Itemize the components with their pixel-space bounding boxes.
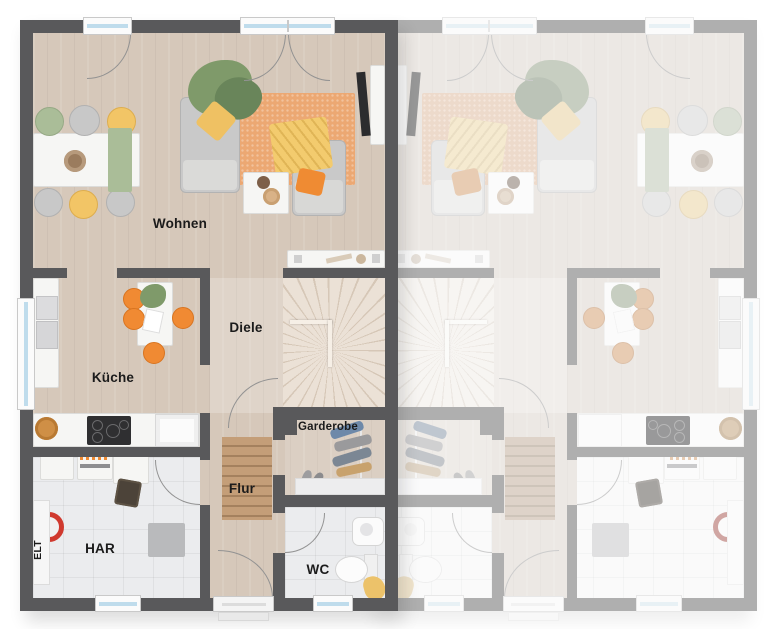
toilet-icon [409,556,442,583]
decor-bowl [64,150,86,172]
tool-basket-icon [114,478,142,508]
dining-chair [34,188,63,217]
dining-chair [679,190,708,219]
fridge-icon [719,321,741,349]
oven-icon [36,296,58,320]
door-step [508,612,559,621]
sink-icon [155,414,199,447]
dining-chair [69,105,100,136]
window [313,595,353,612]
basket-icon [35,417,58,440]
vase-icon [507,176,520,189]
stair-rail-icon [445,320,449,367]
dining-chair [35,107,64,136]
storage-box [148,523,185,557]
staircase [283,278,385,407]
wrench-icon [80,464,110,468]
table-runner [645,128,669,192]
wall [33,447,200,457]
wall [567,268,660,278]
decor-item [397,254,405,263]
sofa-cushion [183,160,237,190]
wall [567,278,577,365]
room-label-elt: ELT [32,532,44,568]
front-door [503,596,564,612]
burner-icon [119,420,129,430]
sofa-cushion [540,160,594,190]
decor-item [356,254,366,264]
door-step [218,612,269,621]
house-unit-left: Wohnen Küche Diele Flur Garderobe HAR WC… [20,20,398,611]
vase-icon [257,176,270,189]
tv-board [370,65,385,145]
basket-icon [719,417,742,440]
hall-runner-rug [222,437,272,520]
dining-chair [677,105,708,136]
wall [492,475,504,513]
table-runner [108,128,132,192]
decor-bowl [691,150,713,172]
hall-runner-rug [505,437,555,520]
window [742,298,760,410]
dining-chair [713,107,742,136]
wall [200,505,210,598]
staircase [392,278,494,407]
washbasin-bowl [360,523,373,536]
blanket [269,116,334,176]
fridge-icon [36,321,58,349]
window [424,595,464,612]
shoe-bench [295,478,385,495]
burner-icon [92,432,103,443]
sink-icon [578,414,622,447]
wall [577,447,744,457]
bar-stool [612,342,634,364]
decor-item [294,255,302,263]
wall [117,268,210,278]
cabinet [40,454,74,480]
wall [492,420,504,440]
tool-basket-icon [635,478,663,508]
window [17,298,35,410]
wall [392,268,494,278]
blanket [444,116,509,176]
decor-item [411,254,421,264]
wall [392,407,504,420]
wall [492,553,504,598]
cabinet [703,454,737,480]
bar-stool [632,308,654,330]
wall [392,495,492,507]
front-door [213,596,274,612]
burner-icon [92,420,103,431]
electrical-panel [727,500,744,585]
house-unit-right [379,20,757,611]
wall [20,20,398,33]
wall [273,553,285,598]
wall [567,505,577,598]
wall [285,495,385,507]
dining-chair [642,188,671,217]
bar-stool [172,307,194,329]
room-label-flur: Flur [202,481,282,496]
tray-icon [263,188,280,205]
party-wall [385,33,398,598]
dining-chair [106,188,135,217]
room-label-garderobe: Garderobe [278,421,378,433]
room-label-wohnen: Wohnen [140,216,220,231]
stair-rail-icon [290,320,332,324]
room-label-diele: Diele [206,320,286,335]
wrench-icon [667,464,697,468]
window [83,17,132,35]
wall [379,20,757,33]
room-label-wc: WC [288,562,348,577]
decor-item [475,255,483,263]
dining-chair [714,188,743,217]
window [95,595,141,612]
burner-icon [674,420,685,431]
stair-rail-icon [445,320,487,324]
oven-icon [719,296,741,320]
burner-icon [657,424,671,438]
storage-box [592,523,629,557]
tray-icon [497,188,514,205]
wall [200,413,210,460]
room-label-har: HAR [60,541,140,556]
burner-icon [674,432,685,443]
window [240,17,335,35]
burner-icon [648,420,658,430]
floor-plan: Wohnen Küche Diele Flur Garderobe HAR WC… [0,0,775,629]
bar-stool [143,342,165,364]
window [442,17,537,35]
window [636,595,682,612]
room-label-kueche: Küche [73,370,153,385]
bar-stool [583,307,605,329]
wall [33,268,67,278]
wall [273,407,385,420]
washbasin-bowl [404,523,417,536]
stair-rail-icon [328,320,332,367]
dining-chair [69,190,98,219]
plant-icon [611,284,637,308]
window [645,17,694,35]
wall [283,268,385,278]
decor-item [372,254,380,263]
shoe-bench [392,478,482,495]
wall [567,413,577,460]
wall [480,420,492,435]
burner-icon [106,424,120,438]
wall [710,268,744,278]
